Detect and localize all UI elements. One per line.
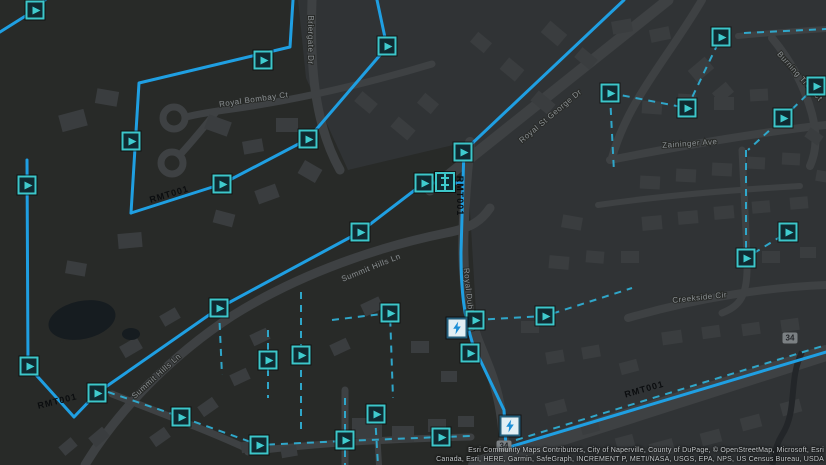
play-icon — [384, 42, 392, 50]
flow-marker[interactable] — [536, 307, 555, 326]
flow-marker[interactable] — [432, 428, 451, 447]
flow-marker[interactable] — [336, 431, 355, 450]
fitting-icon — [441, 184, 449, 186]
play-icon — [387, 309, 395, 317]
attribution-line-1: Esri Community Maps Contributors, City o… — [436, 447, 824, 456]
flow-marker[interactable] — [678, 99, 697, 118]
play-icon — [305, 135, 313, 143]
network-marker-layer: 3434 — [0, 0, 826, 465]
play-icon — [357, 228, 365, 236]
play-icon — [780, 114, 788, 122]
map-viewport[interactable]: Briergate DrRoyal Bombay CtRoyal St Geor… — [0, 0, 826, 465]
flow-marker[interactable] — [601, 84, 620, 103]
route-shield: 34 — [783, 333, 798, 344]
flow-marker[interactable] — [259, 351, 278, 370]
play-icon — [438, 433, 446, 441]
play-icon — [128, 137, 136, 145]
flow-marker[interactable] — [737, 249, 756, 268]
flow-marker[interactable] — [18, 176, 37, 195]
play-icon — [256, 441, 264, 449]
flow-marker[interactable] — [351, 223, 370, 242]
flow-marker[interactable] — [415, 174, 434, 193]
flow-marker[interactable] — [213, 175, 232, 194]
play-icon — [260, 56, 268, 64]
flow-marker[interactable] — [88, 384, 107, 403]
play-icon — [26, 362, 34, 370]
play-icon — [542, 312, 550, 320]
flow-marker[interactable] — [26, 1, 45, 20]
play-icon — [460, 148, 468, 156]
flow-marker[interactable] — [250, 436, 269, 455]
lightning-icon — [505, 420, 515, 433]
play-icon — [216, 304, 224, 312]
flow-marker[interactable] — [20, 357, 39, 376]
play-icon — [421, 179, 429, 187]
play-icon — [32, 6, 40, 14]
play-icon — [813, 82, 821, 90]
flow-marker[interactable] — [122, 132, 141, 151]
play-icon — [785, 228, 793, 236]
play-icon — [467, 349, 475, 357]
flow-marker[interactable] — [378, 37, 397, 56]
flow-marker[interactable] — [172, 408, 191, 427]
play-icon — [178, 413, 186, 421]
play-icon — [342, 436, 350, 444]
flow-marker[interactable] — [299, 130, 318, 149]
flow-marker[interactable] — [774, 109, 793, 128]
fitting-icon — [441, 177, 449, 179]
flow-marker[interactable] — [712, 28, 731, 47]
lightning-icon — [452, 322, 462, 335]
map-attribution: Esri Community Maps Contributors, City o… — [436, 447, 824, 464]
pump-station-marker[interactable] — [500, 416, 521, 437]
flow-marker[interactable] — [807, 77, 826, 96]
play-icon — [219, 180, 227, 188]
play-icon — [265, 356, 273, 364]
flow-marker[interactable] — [254, 51, 273, 70]
fitting-marker[interactable] — [435, 172, 455, 192]
flow-marker[interactable] — [381, 304, 400, 323]
flow-marker[interactable] — [779, 223, 798, 242]
play-icon — [94, 389, 102, 397]
play-icon — [607, 89, 615, 97]
attribution-line-2: Canada, Esri, HERE, Garmin, SafeGraph, I… — [436, 456, 824, 465]
play-icon — [373, 410, 381, 418]
play-icon — [24, 181, 32, 189]
play-icon — [298, 351, 306, 359]
flow-marker[interactable] — [210, 299, 229, 318]
play-icon — [718, 33, 726, 41]
pump-station-marker[interactable] — [447, 318, 468, 339]
flow-marker[interactable] — [466, 311, 485, 330]
flow-marker[interactable] — [367, 405, 386, 424]
flow-marker[interactable] — [461, 344, 480, 363]
play-icon — [743, 254, 751, 262]
flow-marker[interactable] — [292, 346, 311, 365]
play-icon — [472, 316, 480, 324]
play-icon — [684, 104, 692, 112]
flow-marker[interactable] — [454, 143, 473, 162]
